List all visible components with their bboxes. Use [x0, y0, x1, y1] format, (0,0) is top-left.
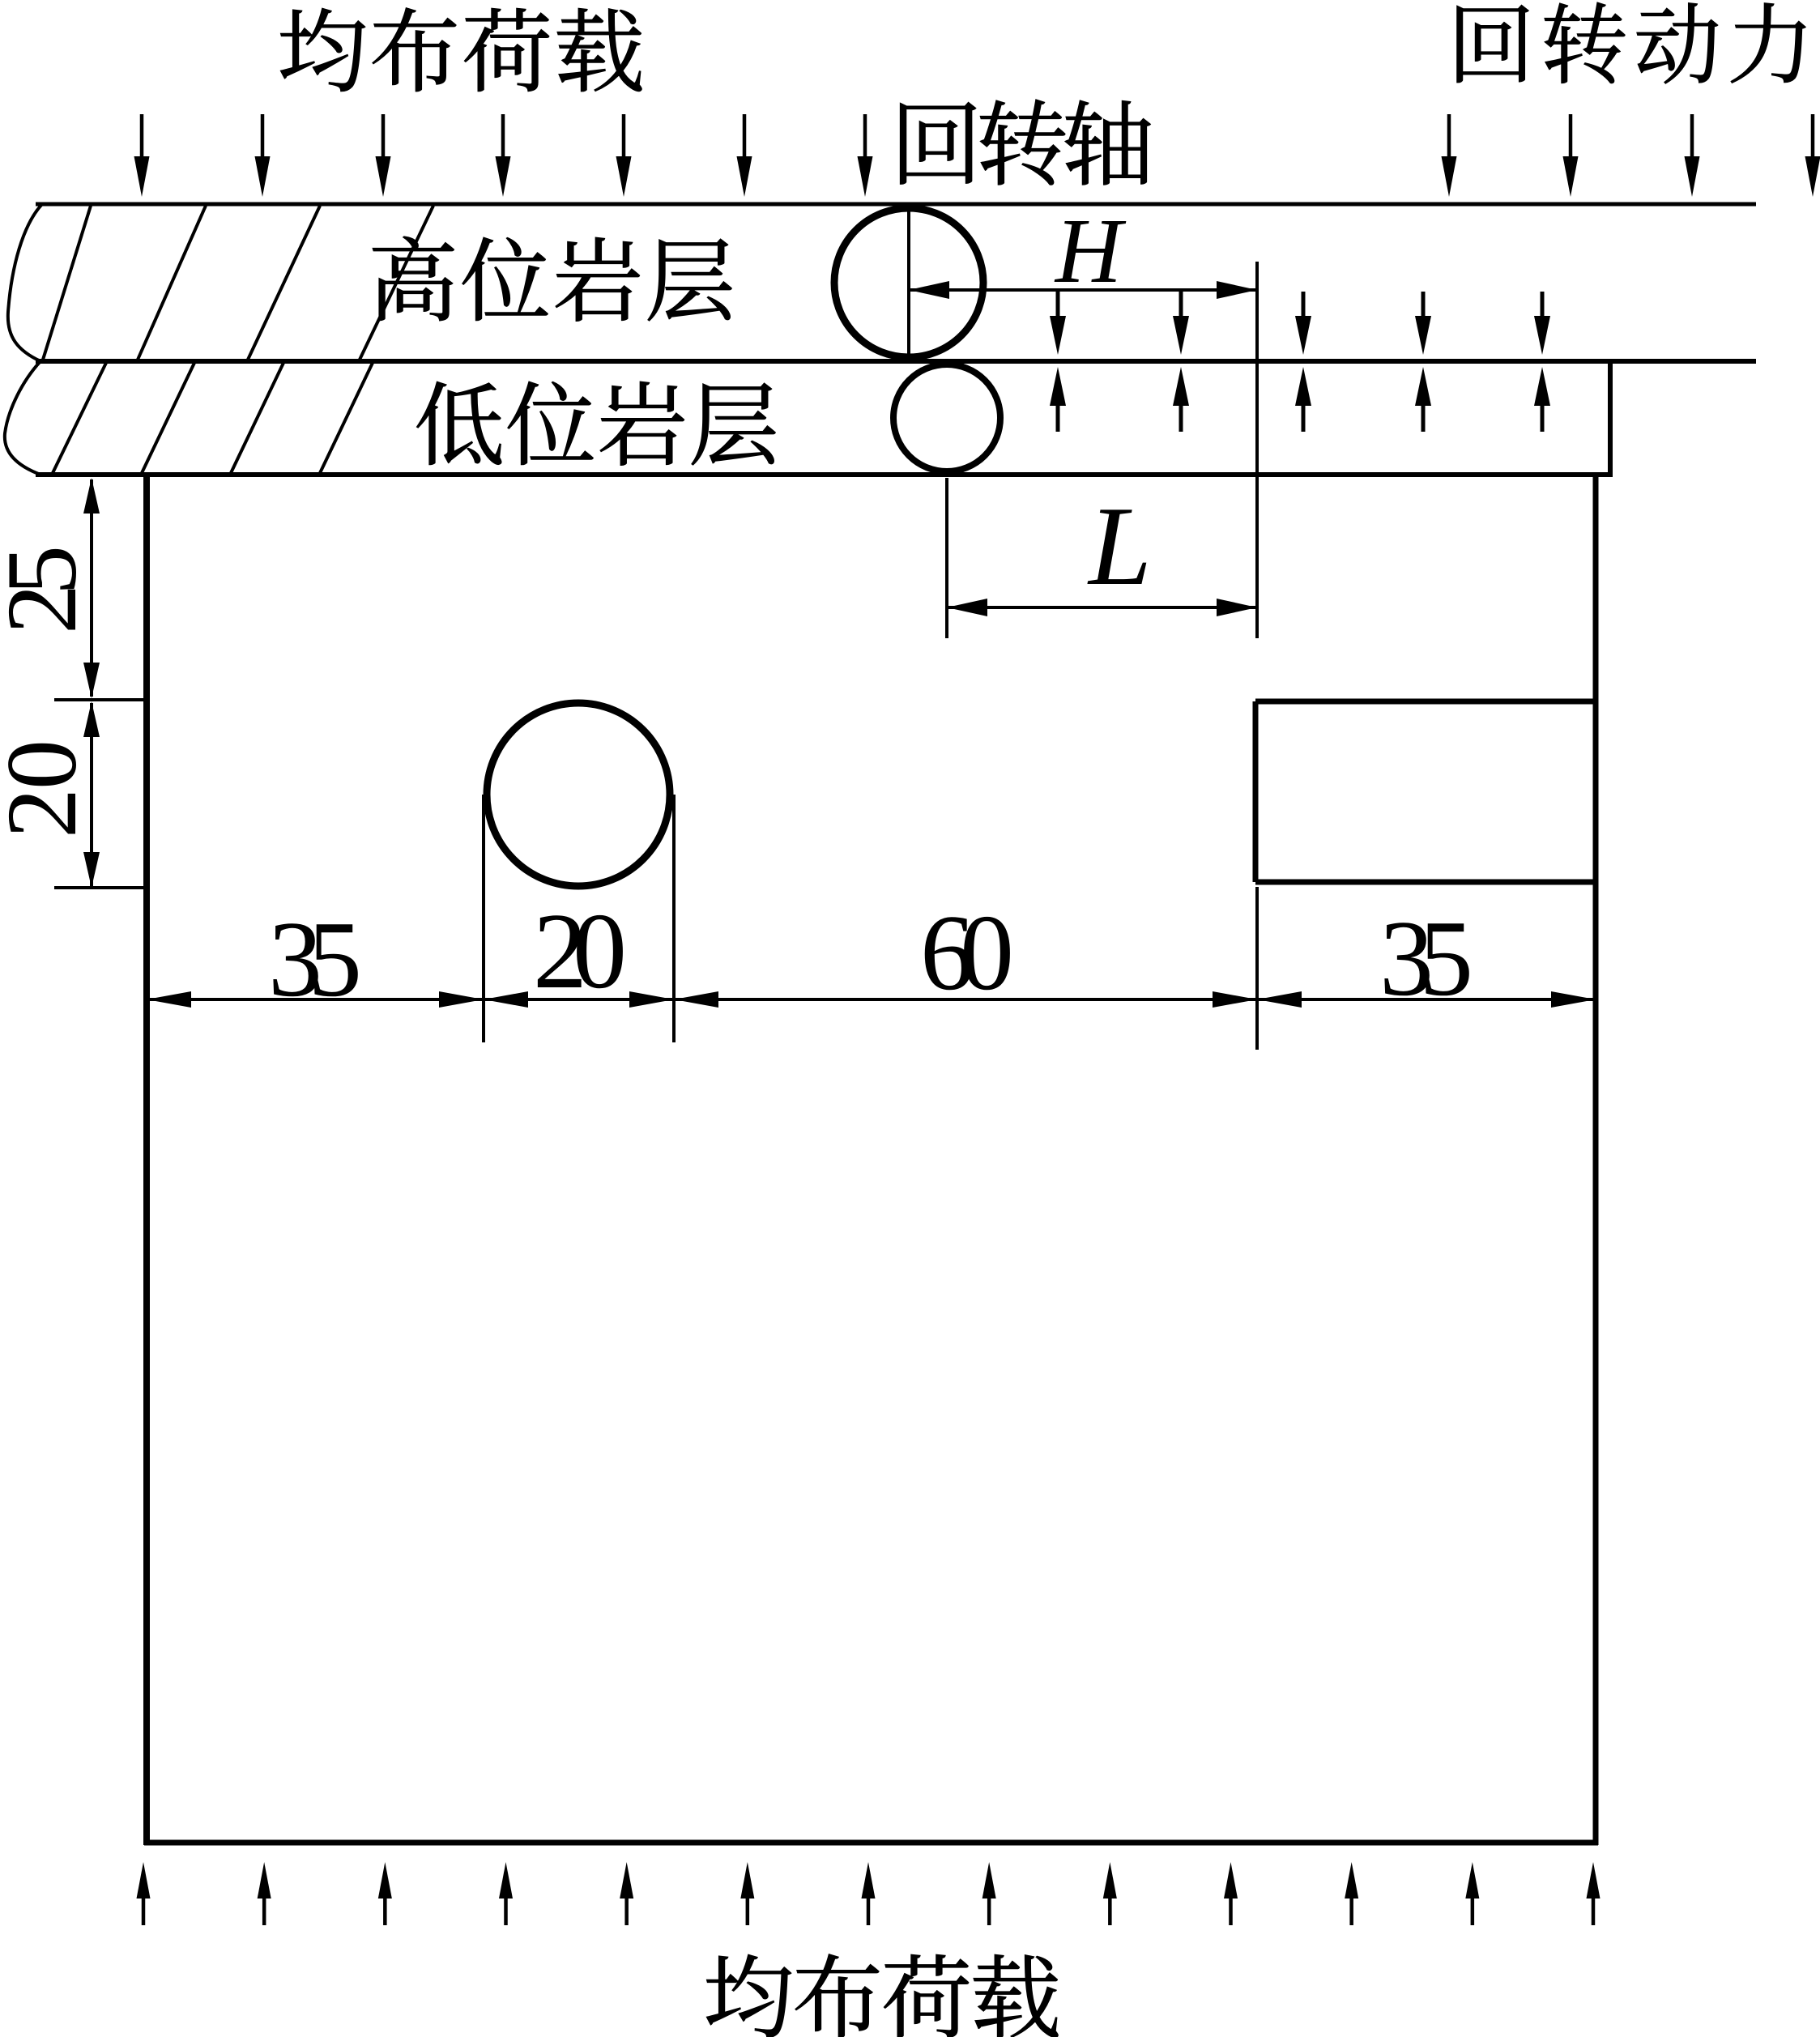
- svg-text:20: 20: [533, 891, 627, 1011]
- svg-text:L: L: [1087, 484, 1152, 609]
- svg-text:20: 20: [0, 739, 97, 838]
- svg-text:35: 35: [268, 899, 362, 1019]
- svg-text:25: 25: [0, 545, 97, 634]
- svg-text:35: 35: [1379, 898, 1473, 1018]
- svg-text:60: 60: [920, 893, 1014, 1012]
- svg-text:H: H: [1054, 199, 1127, 302]
